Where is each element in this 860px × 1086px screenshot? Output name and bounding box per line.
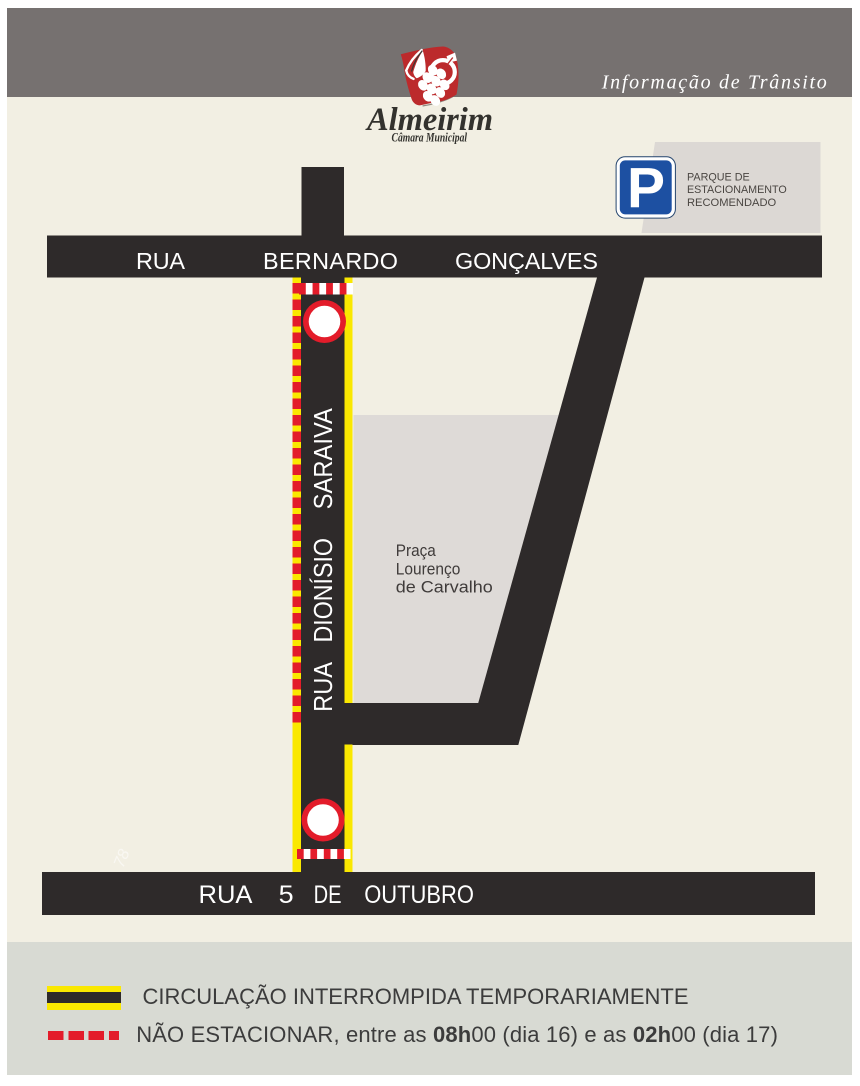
svg-text:RUA: RUA [310, 662, 338, 712]
svg-text:RUA: RUA [136, 248, 185, 274]
svg-text:BERNARDO: BERNARDO [263, 248, 398, 274]
svg-text:RUA: RUA [199, 881, 253, 909]
svg-text:SARAIVA: SARAIVA [310, 408, 338, 509]
svg-text:de Carvalho: de Carvalho [396, 578, 493, 597]
svg-text:ESTACIONAMENTO: ESTACIONAMENTO [687, 184, 787, 196]
svg-text:Câmara Municipal: Câmara Municipal [392, 130, 468, 144]
svg-text:OUTUBRO: OUTUBRO [364, 881, 474, 909]
svg-text:PARQUE DE: PARQUE DE [687, 171, 750, 183]
svg-text:Informação de Trânsito: Informação de Trânsito [601, 72, 827, 94]
svg-text:78: 78 [111, 847, 133, 870]
svg-text:Lourenço: Lourenço [396, 560, 461, 579]
svg-text:RECOMENDADO: RECOMENDADO [687, 197, 776, 209]
svg-text:DE: DE [314, 881, 342, 909]
svg-text:DIONÍSIO: DIONÍSIO [309, 538, 338, 643]
svg-text:P: P [627, 156, 665, 220]
svg-text:GONÇALVES: GONÇALVES [455, 248, 598, 274]
svg-text:5: 5 [279, 881, 294, 909]
svg-text:Praça: Praça [396, 541, 436, 560]
